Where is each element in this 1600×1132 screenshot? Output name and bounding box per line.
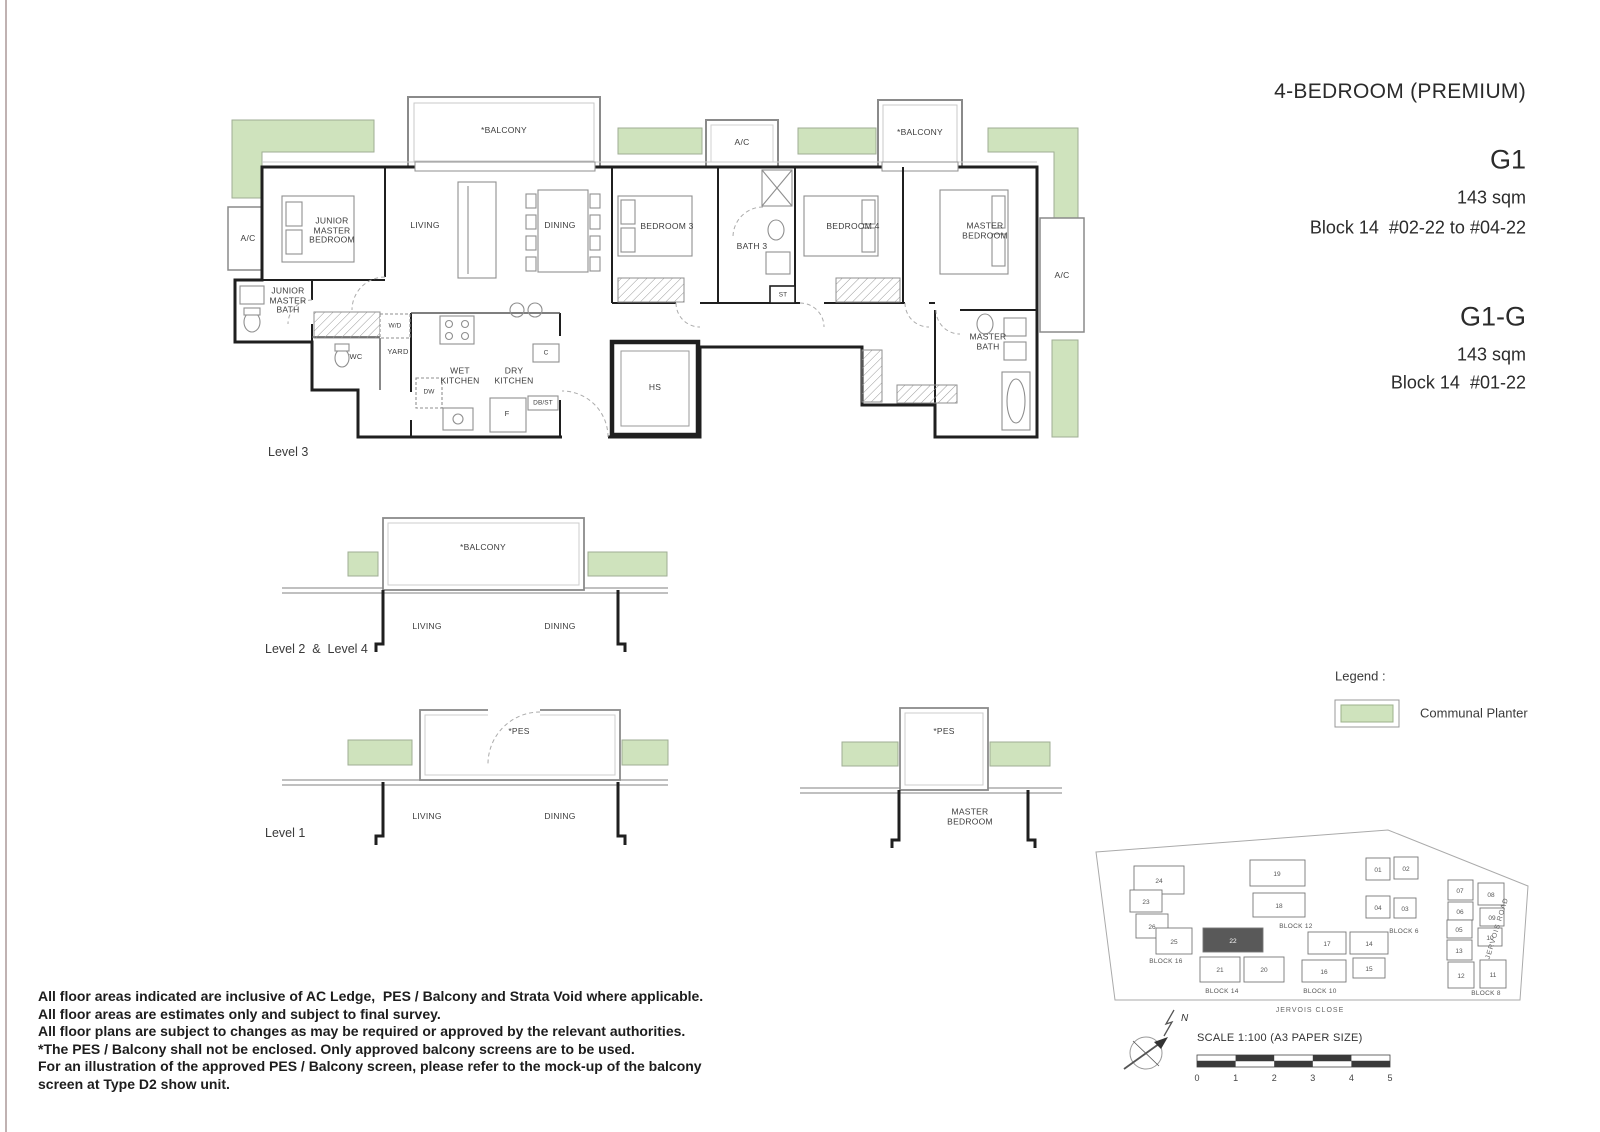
north-label: N: [1181, 1013, 1189, 1024]
svg-text:BLOCK 16: BLOCK 16: [1149, 958, 1183, 965]
note-line-5: For an illustration of the approved PES …: [38, 1058, 703, 1076]
svg-text:03: 03: [1401, 906, 1409, 913]
level1-master-plan: [800, 708, 1062, 848]
road-label-jervois-close: JERVOIS CLOSE: [1276, 1007, 1345, 1014]
note-line-1: All floor areas indicated are inclusive …: [38, 988, 703, 1006]
level1-plan: [282, 706, 668, 845]
room-label-master-bedroom: MASTER BEDROOM: [954, 221, 1016, 240]
room-label-l24-dining: DINING: [544, 622, 575, 632]
svg-text:14: 14: [1365, 941, 1373, 948]
level2-4-plan: [282, 518, 668, 652]
svg-text:BLOCK 10: BLOCK 10: [1303, 988, 1337, 995]
note-line-2: All floor areas are estimates only and s…: [38, 1006, 703, 1024]
highlighted-unit-number: 22: [1229, 938, 1237, 945]
room-label-l1-living: LIVING: [412, 812, 441, 822]
svg-text:19: 19: [1273, 871, 1281, 878]
svg-text:01: 01: [1374, 867, 1382, 874]
svg-text:21: 21: [1216, 967, 1224, 974]
north-compass-icon: N: [1124, 1010, 1189, 1069]
svg-text:07: 07: [1456, 888, 1464, 895]
svg-text:5: 5: [1387, 1073, 1392, 1083]
unit-area-g1: 143 sqm: [1457, 188, 1526, 209]
room-label-balcony-left: *BALCONY: [481, 126, 527, 136]
note-line-6: screen at Type D2 show unit.: [38, 1076, 703, 1094]
svg-text:15: 15: [1365, 966, 1373, 973]
room-label-hs: HS: [649, 383, 661, 393]
scale-ticks: 0 1 2 3 4 5: [1194, 1073, 1392, 1083]
svg-text:16: 16: [1320, 969, 1328, 976]
svg-text:04: 04: [1374, 905, 1382, 912]
svg-text:13: 13: [1455, 948, 1463, 955]
room-label-wc: WC: [350, 353, 363, 361]
room-label-living: LIVING: [410, 221, 439, 231]
floor-plan-page: 24 23 26 25 19 18 22 21 20 17 14 16 15 0…: [0, 0, 1600, 1132]
svg-text:2: 2: [1272, 1073, 1277, 1083]
unit-code-g1g: G1-G: [1460, 302, 1526, 333]
unit-location-g1g: Block 14 #01-22: [1391, 373, 1526, 394]
legend-title: Legend :: [1335, 669, 1386, 684]
svg-text:26: 26: [1148, 924, 1156, 931]
caption-level3: Level 3: [268, 445, 308, 459]
note-line-3: All floor plans are subject to changes a…: [38, 1023, 703, 1041]
room-label-l1-pes: *PES: [508, 727, 529, 737]
plan-drawing: 24 23 26 25 19 18 22 21 20 17 14 16 15 0…: [0, 0, 1600, 1132]
room-label-junior-master-bedroom: JUNIOR MASTER BEDROOM: [297, 217, 367, 246]
room-label-dry-kitchen: DRY KITCHEN: [488, 366, 540, 385]
room-label-balcony-right: *BALCONY: [897, 128, 943, 138]
room-label-l1m-master-bedroom: MASTER BEDROOM: [934, 807, 1006, 826]
svg-text:11: 11: [1490, 972, 1497, 979]
room-label-dw: DW: [423, 388, 434, 395]
room-label-l1m-pes: *PES: [933, 727, 954, 737]
room-label-fridge: F: [505, 410, 510, 418]
sofa: [458, 182, 496, 278]
unit-type-title: 4-BEDROOM (PREMIUM): [1274, 80, 1526, 104]
room-label-master-bath: MASTER BATH: [962, 332, 1014, 351]
svg-text:BLOCK 12: BLOCK 12: [1279, 923, 1313, 930]
svg-text:BLOCK 14: BLOCK 14: [1205, 988, 1239, 995]
svg-text:0: 0: [1194, 1073, 1199, 1083]
svg-text:05: 05: [1455, 927, 1463, 934]
room-label-st: ST: [779, 291, 788, 298]
svg-text:BLOCK 6: BLOCK 6: [1389, 928, 1419, 935]
unit-code-g1: G1: [1490, 145, 1526, 176]
room-label-l24-living: LIVING: [412, 622, 441, 632]
svg-text:06: 06: [1456, 909, 1464, 916]
svg-text:24: 24: [1155, 878, 1163, 885]
scale-label: SCALE 1:100 (A3 PAPER SIZE): [1197, 1032, 1363, 1044]
room-label-wd: W/D: [389, 322, 402, 329]
room-label-ac-left: A/C: [241, 234, 256, 244]
room-label-dining: DINING: [544, 221, 575, 231]
room-label-ac-top: A/C: [735, 138, 750, 148]
svg-text:3: 3: [1310, 1073, 1315, 1083]
svg-text:20: 20: [1260, 967, 1268, 974]
disclaimer-notes: All floor areas indicated are inclusive …: [38, 988, 703, 1093]
room-label-l24-balcony: *BALCONY: [460, 543, 506, 553]
svg-text:25: 25: [1170, 939, 1178, 946]
room-label-junior-master-bath: JUNIOR MASTER BATH: [259, 287, 317, 316]
svg-text:4: 4: [1349, 1073, 1354, 1083]
svg-text:12: 12: [1457, 973, 1465, 980]
room-label-ac-right: A/C: [1055, 271, 1070, 281]
room-label-wet-kitchen: WET KITCHEN: [434, 366, 486, 385]
note-line-4: *The PES / Balcony shall not be enclosed…: [38, 1041, 703, 1059]
svg-text:02: 02: [1402, 866, 1410, 873]
room-label-counter: C: [544, 349, 549, 356]
svg-text:08: 08: [1487, 892, 1495, 899]
svg-text:09: 09: [1488, 915, 1496, 922]
svg-text:17: 17: [1323, 941, 1331, 948]
room-label-yard: YARD: [387, 348, 408, 356]
unit-location-g1: Block 14 #02-22 to #04-22: [1310, 218, 1526, 239]
scale-bar: 0 1 2 3 4 5: [1194, 1055, 1392, 1083]
svg-text:23: 23: [1142, 899, 1150, 906]
caption-level1: Level 1: [265, 826, 305, 840]
svg-text:1: 1: [1233, 1073, 1238, 1083]
caption-level2-4: Level 2 & Level 4: [265, 642, 368, 656]
room-label-bedroom3: BEDROOM 3: [640, 222, 693, 232]
room-label-l1-dining: DINING: [544, 812, 575, 822]
room-label-bedroom4: BEDROOM 4: [826, 222, 879, 232]
unit-area-g1g: 143 sqm: [1457, 345, 1526, 366]
wc-fixtures: [335, 344, 349, 367]
room-label-bath3: BATH 3: [737, 242, 768, 252]
site-buildings: [1130, 857, 1506, 988]
legend-swatch: [1335, 700, 1399, 727]
svg-text:18: 18: [1275, 903, 1283, 910]
svg-text:BLOCK 8: BLOCK 8: [1471, 990, 1501, 997]
room-label-dbst: DB/ST: [533, 399, 553, 406]
legend-item-communal-planter: Communal Planter: [1420, 706, 1528, 721]
site-plan: 24 23 26 25 19 18 22 21 20 17 14 16 15 0…: [1096, 830, 1528, 1014]
